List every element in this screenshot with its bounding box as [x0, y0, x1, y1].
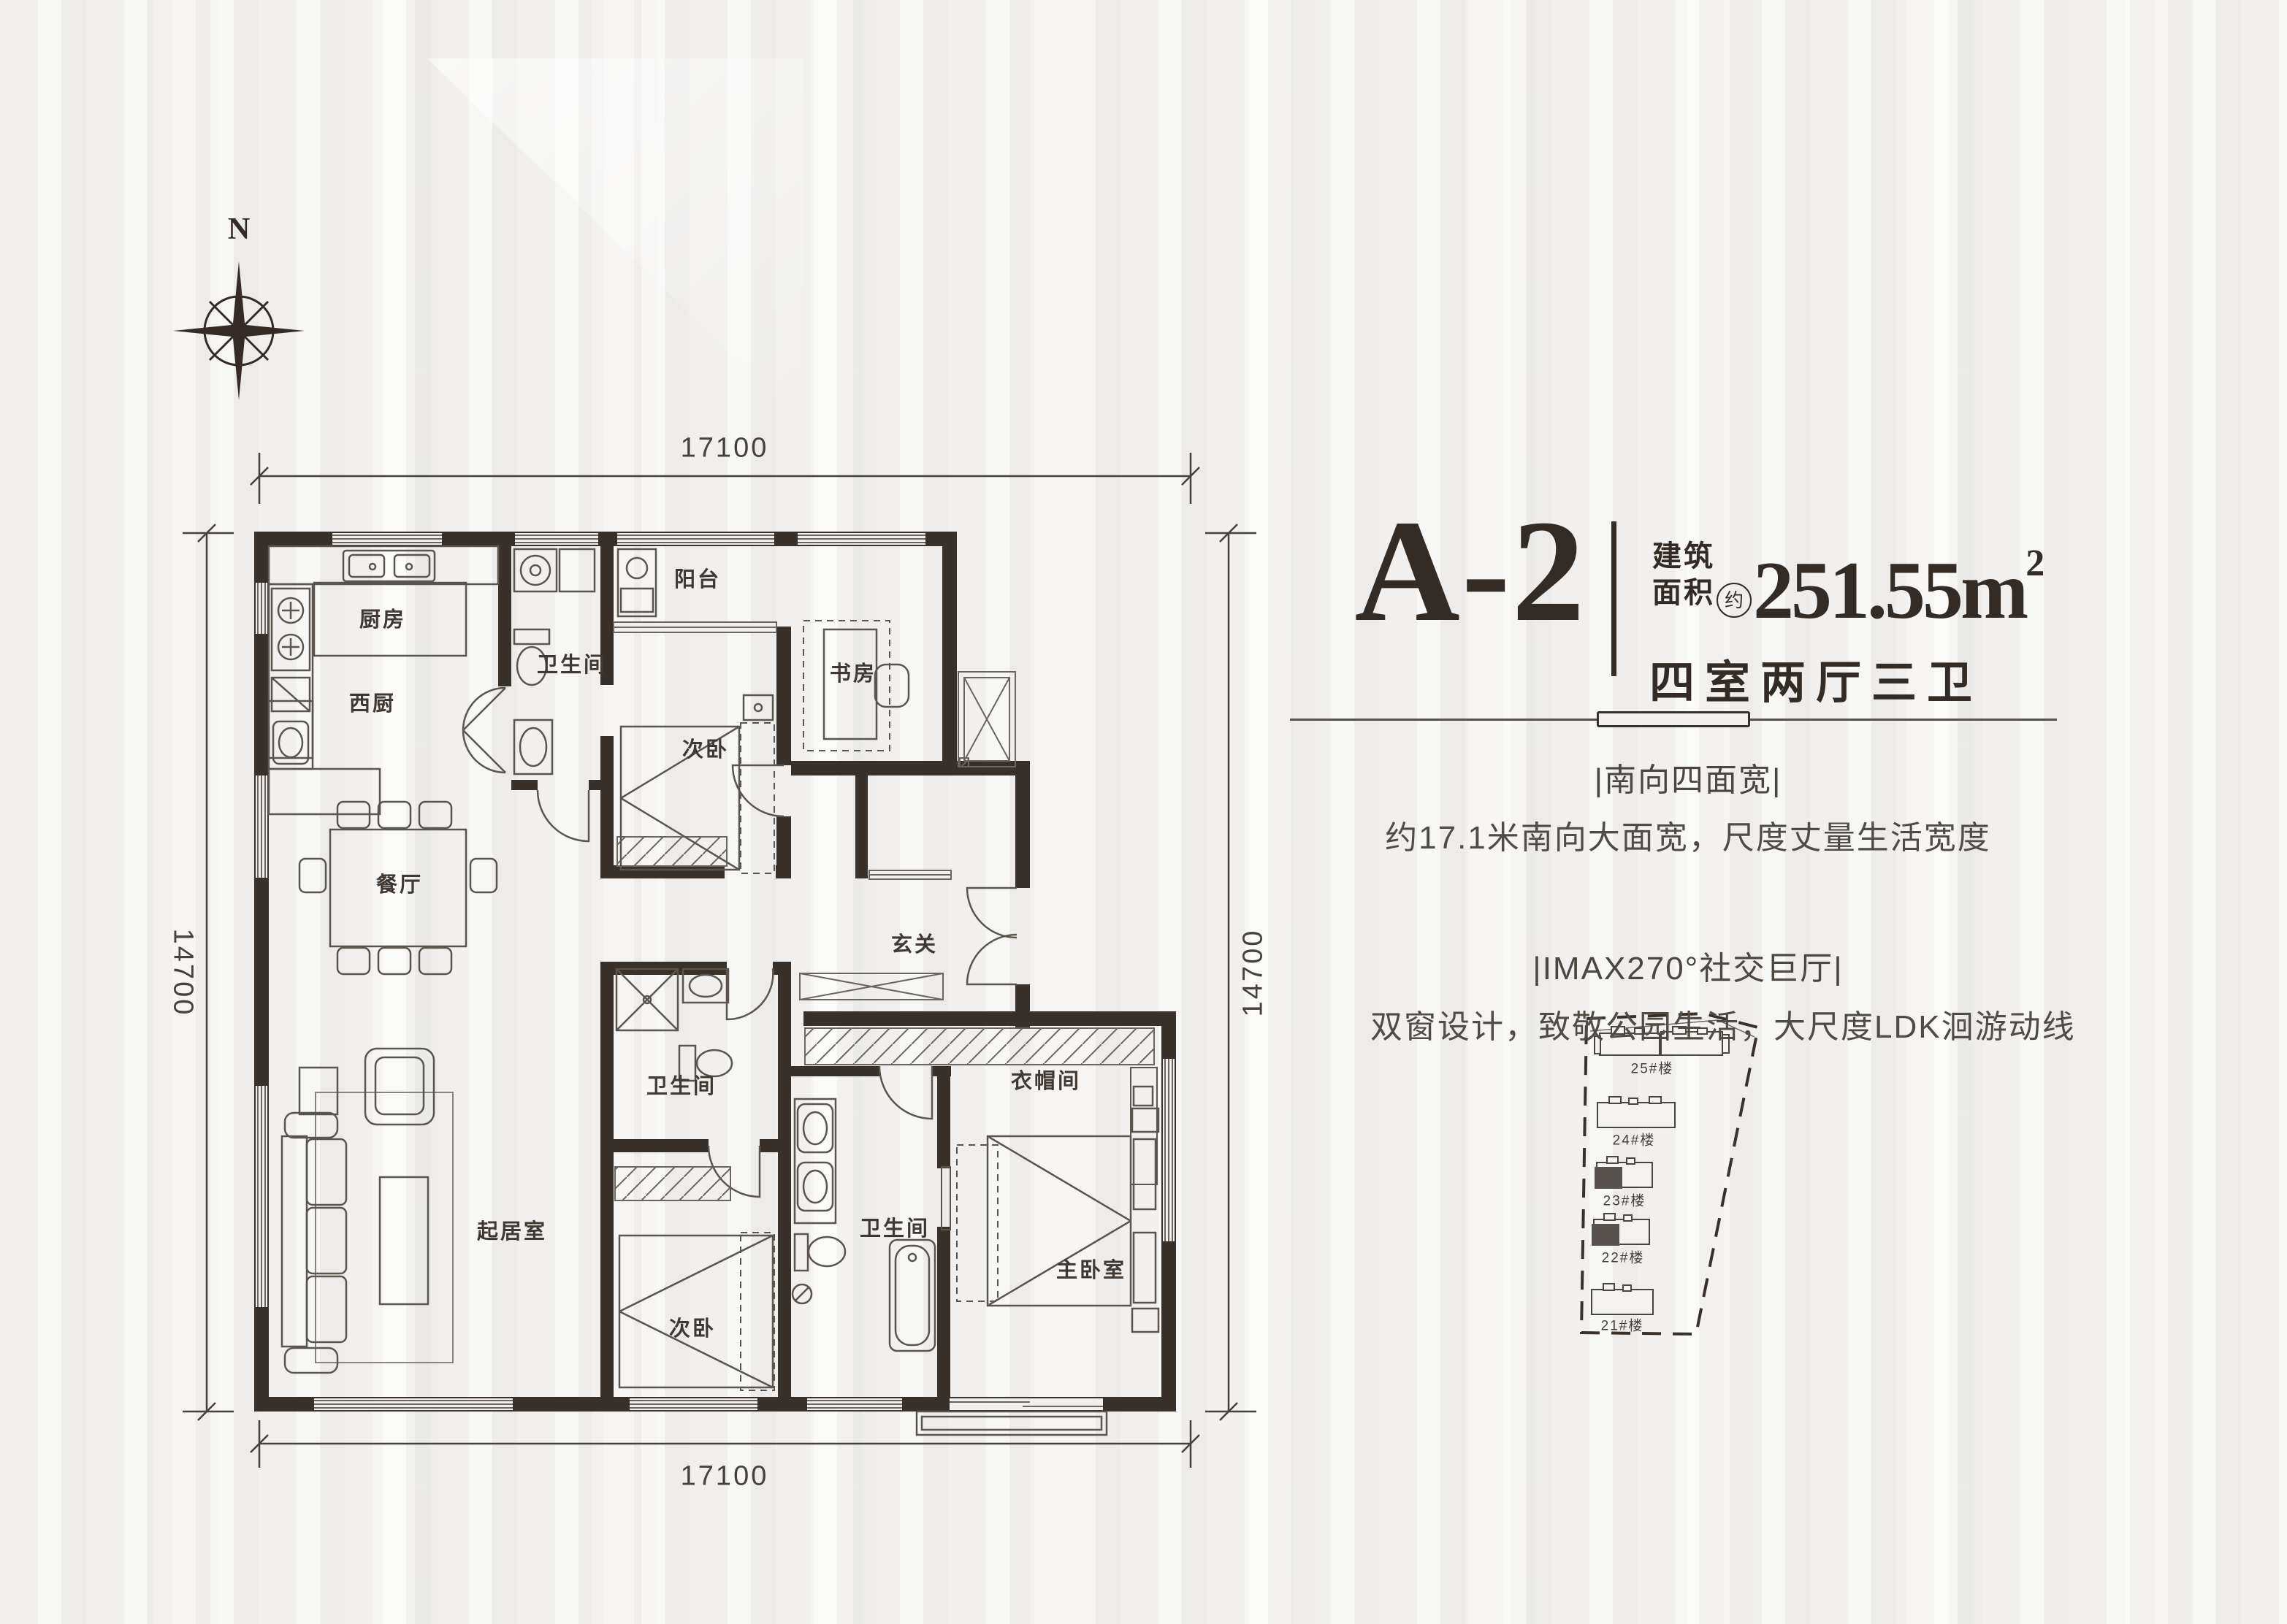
room-label-living: 起居室 [477, 1214, 547, 1245]
room-label-master-bath: 卫生间 [860, 1211, 930, 1242]
building-label-23: 23#楼 [1603, 1190, 1646, 1210]
room-label-cloakroom: 衣帽间 [1011, 1064, 1081, 1095]
dimension-top: 17100 [681, 433, 769, 464]
building-label-25: 25#楼 [1631, 1058, 1674, 1078]
room-label-bedroom-3: 次卧 [669, 1311, 716, 1342]
room-label-foyer: 玄关 [891, 927, 938, 958]
room-label-study: 书房 [830, 656, 877, 687]
building-23-highlight [1595, 1167, 1622, 1189]
selling-point-headline-2: |IMAX270°社交巨厅| [1370, 942, 2006, 989]
room-label-balcony: 阳台 [674, 562, 721, 593]
building-22-highlight [1592, 1224, 1619, 1246]
dimension-lines [183, 453, 1256, 1468]
room-label-west-kitchen: 西厨 [349, 686, 396, 717]
section-divider-cap [1597, 711, 1750, 727]
layout-spec: 四室两厅三卫 [1649, 646, 1982, 711]
compass-north-label: N [228, 212, 250, 247]
area-label-line2: 面积 [1652, 575, 1715, 611]
area-exponent: 2 [2026, 543, 2044, 584]
area-number: 251.55 [1753, 545, 1960, 636]
approx-badge: 约 [1717, 583, 1752, 618]
walls [254, 532, 1176, 1412]
plan-code: A-2 [1350, 488, 1591, 655]
selling-point-body-1: 约17.1米南向大面宽，尺度丈量生活宽度 [1370, 811, 2006, 858]
area-value: 251.55m2 [1753, 542, 2044, 638]
area-label-line1: 建筑 [1652, 538, 1715, 575]
compass-icon [173, 261, 305, 400]
room-label-dining: 餐厅 [376, 867, 423, 898]
room-label-bath-1: 卫生间 [537, 648, 607, 678]
dimension-bottom: 17100 [681, 1461, 769, 1493]
building-label-21: 21#楼 [1601, 1315, 1644, 1335]
room-label-bath-2: 卫生间 [646, 1069, 717, 1100]
room-label-master-bedroom: 主卧室 [1056, 1253, 1126, 1284]
dimension-right: 14700 [1238, 929, 1270, 1017]
building-label-22: 22#楼 [1602, 1247, 1645, 1267]
room-label-kitchen: 厨房 [359, 602, 406, 633]
floorplan-page: N 17100 17100 14700 14700 厨房 西厨 卫生间 阳台 次… [0, 0, 2287, 1624]
area-label: 建筑 面积 [1652, 538, 1715, 611]
title-divider-bar [1611, 521, 1616, 676]
area-unit: m [1960, 545, 2026, 636]
dimension-left: 14700 [167, 929, 199, 1017]
selling-point-headline-1: |南向四面宽| [1370, 754, 2006, 800]
building-label-24: 24#楼 [1613, 1130, 1656, 1149]
room-label-bedroom-2: 次卧 [682, 732, 729, 763]
selling-point-body-2: 双窗设计，致敬公园生活，大尺度LDK洄游动线 [1370, 1000, 2006, 1047]
